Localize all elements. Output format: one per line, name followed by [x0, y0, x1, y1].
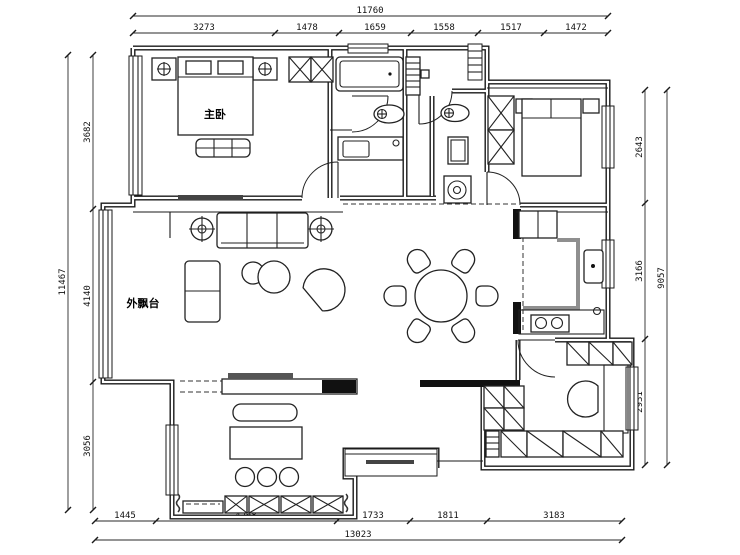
coffee-table: [258, 261, 290, 293]
dining-chair: [384, 286, 406, 306]
dining-chair: [404, 246, 433, 275]
room-label-master-bedroom: 主卧: [204, 107, 226, 121]
threshold-sill: [178, 195, 243, 200]
dim-bottom-seg-0: 1445: [114, 511, 136, 521]
dim-left-total: 11467: [58, 268, 68, 295]
floor-plan-page: 11760 3273 1478 1659 1558 1517 1472 1445…: [0, 0, 740, 555]
dim-top-seg-5: 1472: [565, 23, 587, 33]
dim-top-seg-4: 1517: [500, 23, 522, 33]
door-study: [518, 340, 555, 377]
tea-table: [230, 427, 302, 459]
stove: [531, 315, 569, 332]
study-bottom-cabinets: [501, 431, 623, 457]
room-living: 外飘台: [126, 213, 354, 322]
room-label-bay-window: 外飘台: [126, 296, 160, 310]
window-bay-left: [99, 210, 112, 378]
dining-area: [384, 246, 498, 347]
dining-chair: [476, 286, 498, 306]
pillow: [186, 61, 211, 74]
window-top-bath: [348, 44, 388, 53]
toilet: [441, 105, 469, 122]
window-bedroom2-right: [602, 106, 614, 168]
shoe-cabinet: [406, 57, 429, 95]
stool: [280, 468, 299, 487]
dimension-top: 11760 3273 1478 1659 1558 1517 1472: [130, 6, 611, 36]
nightstand: [583, 99, 599, 113]
window-kitchen-right: [602, 240, 614, 288]
study-top-cabinets: [567, 342, 632, 365]
bathtub: [336, 57, 403, 91]
pillow: [218, 61, 243, 74]
dim-top-seg-2: 1659: [364, 23, 386, 33]
dim-left-seg-2: 3056: [83, 435, 93, 457]
dim-left-seg-0: 3682: [83, 121, 93, 143]
kitchen-counter: [523, 240, 578, 308]
desk: [604, 365, 628, 433]
door-master-bedroom: [302, 162, 338, 198]
sofa: [217, 213, 308, 248]
dim-top-seg-3: 1558: [433, 23, 455, 33]
dim-bottom-seg-3: 1811: [437, 511, 459, 521]
annotation-mark: [345, 494, 348, 512]
dim-right-seg-1: 3166: [635, 260, 645, 282]
dim-bottom-seg-2: 1733: [362, 511, 384, 521]
fridge: [519, 211, 557, 238]
room-study: [484, 342, 632, 457]
kitchen-sink: [584, 250, 603, 283]
dim-right-total: 9057: [657, 267, 667, 289]
window-bottom-left: [166, 425, 178, 495]
ladder-rack: [486, 431, 499, 457]
dim-bottom-total: 13023: [344, 530, 371, 540]
console-dark-block: [322, 380, 356, 393]
bay-window-bottom: [345, 449, 437, 476]
tv-area: [177, 373, 358, 513]
dining-chair: [450, 246, 479, 275]
dining-chair: [404, 317, 433, 346]
side-cabinet: [185, 261, 220, 322]
bench: [233, 404, 297, 421]
room-bathroom-2: [406, 57, 471, 203]
shoe-bench: [183, 501, 223, 513]
dim-right-seg-0: 2643: [635, 136, 645, 158]
vanity-sink: [338, 137, 403, 160]
dim-top-total: 11760: [356, 6, 383, 16]
room-bathroom-1: [336, 57, 404, 160]
toilet: [374, 105, 404, 123]
knob: [594, 308, 601, 315]
bed-bedroom2: [522, 99, 581, 176]
master-bed: [178, 57, 253, 135]
armchair: [299, 260, 353, 315]
ceiling-symbol: [189, 216, 215, 242]
wardrobe-bedroom2: [488, 96, 514, 164]
dining-chair: [450, 317, 479, 346]
wall-stub: [513, 302, 521, 334]
dim-left-seg-1: 4140: [83, 285, 93, 307]
annotation-mark: [177, 494, 180, 512]
wardrobe-master: [289, 57, 333, 82]
desk-chair: [568, 381, 598, 417]
study-left-cabinets: [484, 386, 524, 430]
laundry-cabinet: [448, 137, 468, 164]
switch-box: [421, 70, 429, 78]
door-bedroom2: [487, 172, 520, 205]
bottom-cabinet-row: [177, 494, 348, 513]
ceiling-symbol: [308, 216, 334, 242]
bed-bench: [196, 139, 250, 157]
dining-table: [415, 270, 467, 322]
room-bedroom-2: [488, 96, 599, 176]
room-kitchen: [519, 211, 604, 334]
stool: [236, 468, 255, 487]
dim-top-seg-1: 1478: [296, 23, 318, 33]
stool: [258, 468, 277, 487]
floor-plan-canvas: 11760 3273 1478 1659 1558 1517 1472 1445…: [0, 0, 740, 555]
dim-top-seg-0: 3273: [193, 23, 215, 33]
dim-bottom-seg-4: 3183: [543, 511, 565, 521]
dimension-right: 2643 3166 2931 9057: [635, 87, 670, 468]
window-master-left: [129, 56, 142, 195]
window-entry-top: [468, 44, 482, 80]
tv: [228, 373, 293, 379]
washing-machine: [444, 176, 471, 203]
room-master-bedroom: 主卧: [152, 57, 333, 200]
dimension-left: 11467 3682 4140 3056: [58, 52, 96, 513]
